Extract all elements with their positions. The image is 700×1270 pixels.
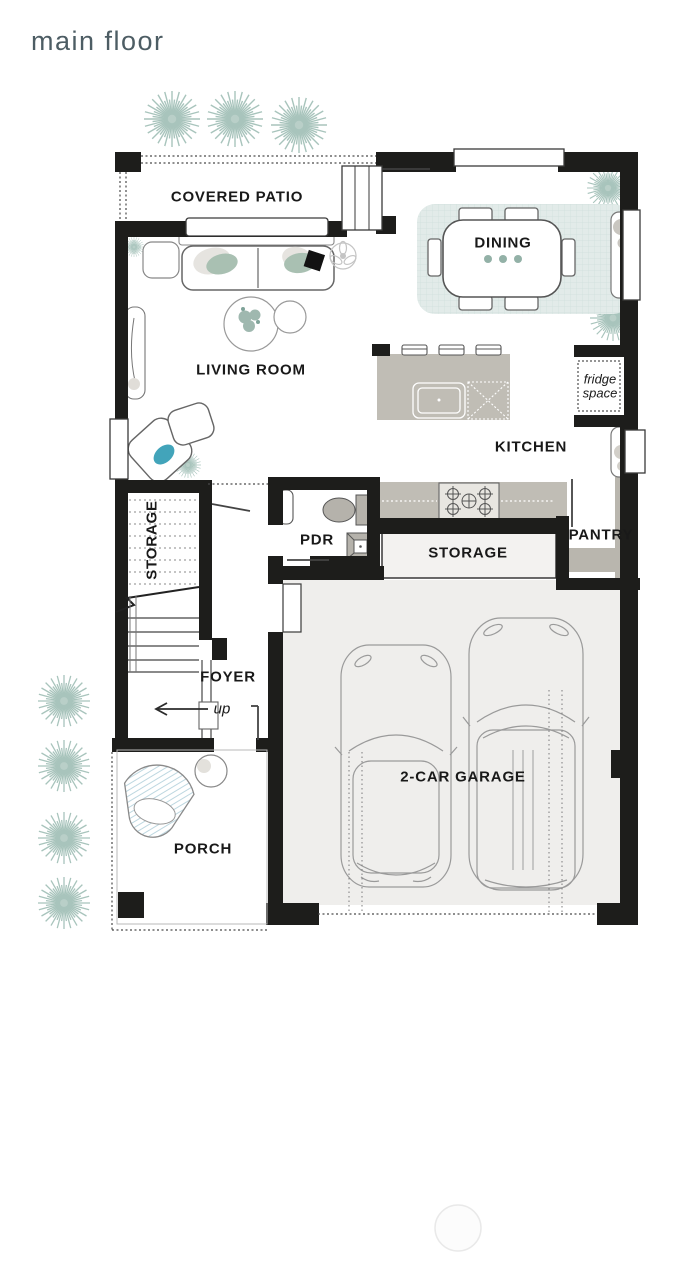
- powder-room-fixtures: [279, 490, 373, 559]
- coffee-tables: [224, 297, 306, 351]
- porch-chair: [113, 757, 199, 845]
- floor-plan-canvas: [0, 0, 700, 1270]
- stair-break-line: [116, 587, 199, 612]
- room-label-storage: STORAGE: [428, 545, 508, 562]
- room-label-porch: PORCH: [174, 841, 232, 858]
- room-label-kitchen: KITCHEN: [495, 439, 567, 456]
- room-label-pantry: PANTRY: [569, 527, 634, 544]
- bar-stools: [402, 345, 501, 355]
- cooktop-icon: [439, 483, 499, 520]
- room-label-garage: 2-CAR GARAGE: [400, 769, 525, 786]
- plant-icon: [144, 91, 200, 147]
- dining-label-dots: [484, 255, 522, 263]
- window: [625, 430, 645, 473]
- sliding-door: [186, 218, 328, 236]
- porch-furniture: [113, 755, 227, 845]
- side-table: [143, 242, 179, 278]
- sofa: [179, 232, 334, 290]
- toilet-icon: [323, 495, 369, 525]
- understair-storage-lines: [129, 500, 197, 584]
- window: [110, 419, 128, 479]
- room-label-pdr: PDR: [300, 532, 334, 549]
- understair-door: [212, 504, 250, 511]
- porch-table-decor: [197, 759, 211, 773]
- plant-icon: [207, 91, 263, 147]
- window: [623, 210, 640, 300]
- living-room-furniture: [123, 232, 357, 487]
- pantry-shelf-bottom: [569, 548, 615, 572]
- fridge-space-label: fridge space: [574, 372, 626, 399]
- porch-post: [118, 892, 144, 918]
- room-label-living-room: LIVING ROOM: [196, 362, 306, 379]
- room-label-foyer: FOYER: [200, 669, 256, 686]
- stair-up-label: up: [214, 701, 231, 718]
- plant-icon: [271, 97, 327, 153]
- kitchen-island: [377, 354, 510, 420]
- plant-icon: [38, 812, 90, 864]
- page: main floor: [0, 0, 700, 1270]
- watermark-circle: [435, 1205, 481, 1251]
- plant-icon: [38, 877, 90, 929]
- dining-set: [417, 204, 632, 314]
- window: [454, 149, 564, 166]
- garage-entry-door: [283, 584, 301, 632]
- floor-plan: COVERED PATIO DINING LIVING ROOM KITCHEN…: [0, 0, 700, 1270]
- room-label-dining: DINING: [474, 235, 531, 252]
- stair-treads: [128, 618, 199, 672]
- room-label-understair-storage: STORAGE: [144, 500, 161, 580]
- ceiling-fan-icon: [329, 242, 358, 270]
- room-label-covered-patio: COVERED PATIO: [171, 189, 303, 206]
- plant-icon: [38, 675, 90, 727]
- plant-icon: [38, 740, 90, 792]
